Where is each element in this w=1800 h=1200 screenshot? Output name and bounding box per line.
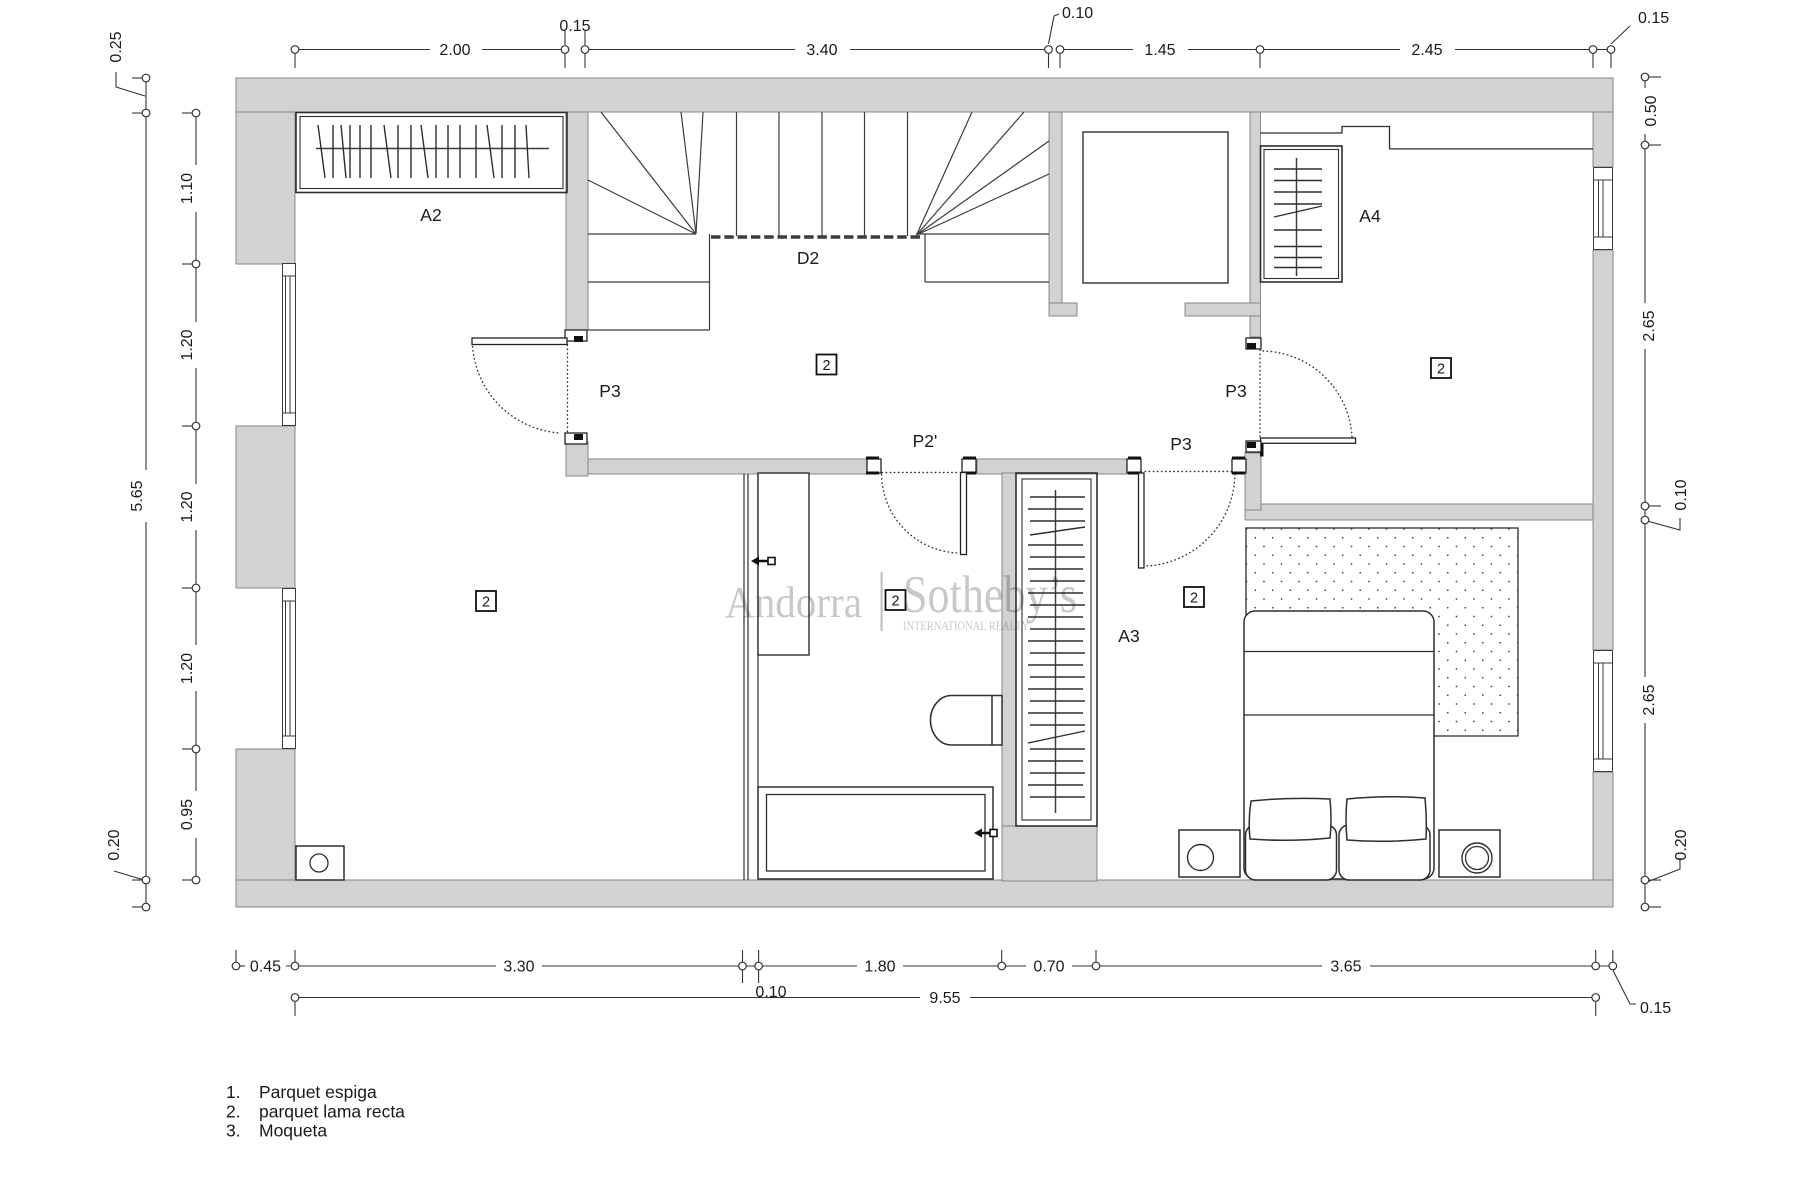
svg-text:1.20: 1.20 bbox=[179, 329, 196, 360]
svg-text:0.10: 0.10 bbox=[755, 984, 786, 1001]
svg-text:2.65: 2.65 bbox=[1641, 310, 1658, 341]
svg-text:1.20: 1.20 bbox=[179, 491, 196, 522]
svg-text:0.20: 0.20 bbox=[106, 829, 123, 860]
svg-text:1.: 1. bbox=[226, 1082, 241, 1102]
svg-text:1.80: 1.80 bbox=[864, 959, 895, 976]
svg-text:0.15: 0.15 bbox=[1638, 10, 1669, 27]
svg-text:2: 2 bbox=[822, 358, 830, 374]
svg-text:2.45: 2.45 bbox=[1411, 42, 1442, 59]
svg-text:2: 2 bbox=[1190, 591, 1198, 607]
svg-text:0.70: 0.70 bbox=[1033, 959, 1064, 976]
svg-text:3.: 3. bbox=[226, 1121, 241, 1141]
svg-text:2: 2 bbox=[482, 595, 490, 611]
svg-text:A3: A3 bbox=[1118, 626, 1139, 646]
svg-text:0.50: 0.50 bbox=[1643, 95, 1660, 126]
svg-text:9.55: 9.55 bbox=[929, 990, 960, 1007]
svg-text:3.30: 3.30 bbox=[503, 959, 534, 976]
svg-text:3.40: 3.40 bbox=[806, 42, 837, 59]
svg-text:Parquet espiga: Parquet espiga bbox=[259, 1082, 377, 1102]
svg-text:1.10: 1.10 bbox=[179, 173, 196, 204]
svg-text:INTERNATIONAL REALTY: INTERNATIONAL REALTY bbox=[903, 618, 1029, 633]
svg-text:0.15: 0.15 bbox=[559, 18, 590, 35]
svg-text:P2': P2' bbox=[913, 431, 938, 451]
svg-text:P3: P3 bbox=[1170, 434, 1191, 454]
svg-text:2.: 2. bbox=[226, 1102, 241, 1122]
svg-text:0.10: 0.10 bbox=[1062, 5, 1093, 22]
svg-text:D2: D2 bbox=[797, 248, 819, 268]
svg-text:2: 2 bbox=[891, 594, 899, 610]
svg-text:P3: P3 bbox=[1225, 381, 1246, 401]
svg-text:Andorra: Andorra bbox=[725, 578, 862, 627]
svg-text:P3: P3 bbox=[599, 381, 620, 401]
svg-text:0.10: 0.10 bbox=[1673, 479, 1690, 510]
svg-text:1.20: 1.20 bbox=[179, 653, 196, 684]
svg-text:Moqueta: Moqueta bbox=[259, 1121, 327, 1141]
svg-text:0.95: 0.95 bbox=[179, 799, 196, 830]
svg-text:3.65: 3.65 bbox=[1330, 959, 1361, 976]
svg-text:0.20: 0.20 bbox=[1673, 829, 1690, 860]
svg-text:Sotheby’s: Sotheby’s bbox=[903, 566, 1077, 624]
svg-text:A2: A2 bbox=[420, 205, 441, 225]
svg-text:parquet lama recta: parquet lama recta bbox=[259, 1102, 405, 1122]
svg-text:0.45: 0.45 bbox=[250, 959, 281, 976]
svg-text:1.45: 1.45 bbox=[1144, 42, 1175, 59]
svg-text:0.15: 0.15 bbox=[1640, 1000, 1671, 1017]
svg-text:2.65: 2.65 bbox=[1641, 684, 1658, 715]
svg-text:5.65: 5.65 bbox=[129, 480, 146, 511]
svg-text:0.25: 0.25 bbox=[108, 31, 125, 62]
svg-text:A4: A4 bbox=[1359, 206, 1381, 226]
svg-text:2: 2 bbox=[1437, 362, 1445, 378]
svg-text:2.00: 2.00 bbox=[439, 42, 470, 59]
